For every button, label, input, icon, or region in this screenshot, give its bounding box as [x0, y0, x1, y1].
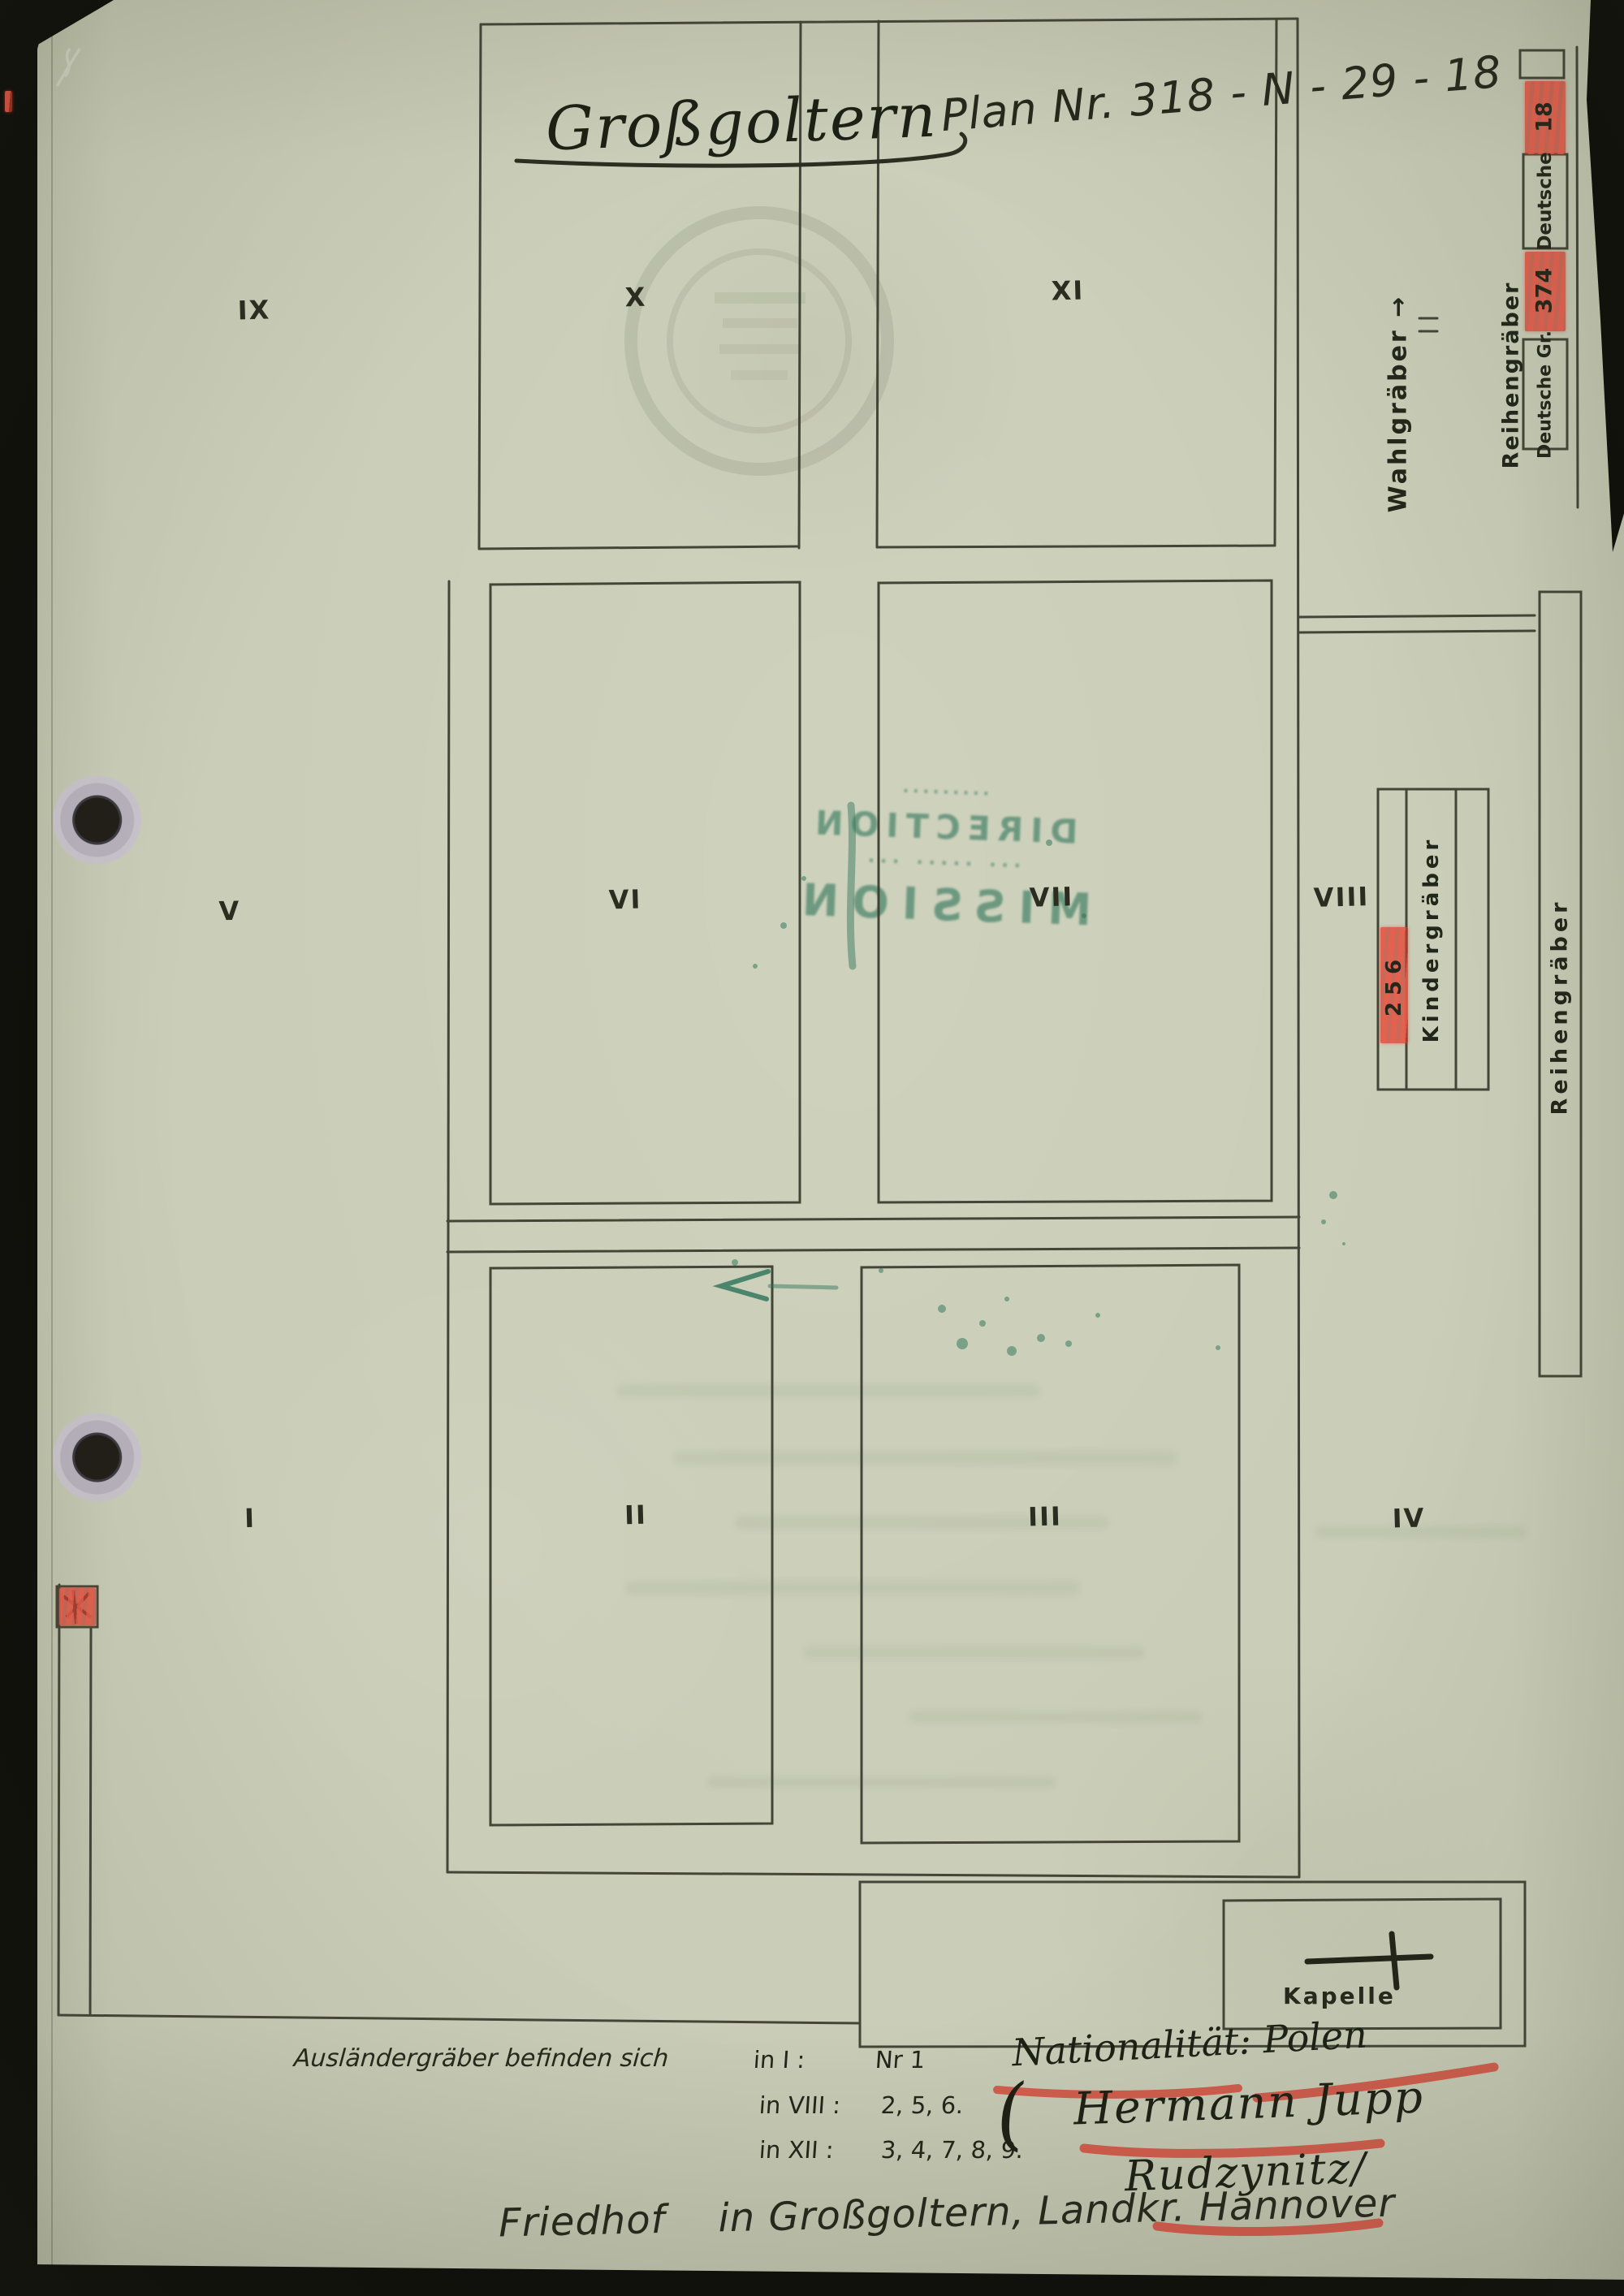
plot-label-x: X — [624, 282, 647, 313]
plot-label-v: V — [218, 896, 241, 927]
red-edge-dash — [5, 91, 12, 112]
label-wahlgraeber-text: Wahlgräber — [1384, 328, 1413, 512]
note-row: in I : Nr 1 — [753, 2046, 926, 2074]
label-deutsche: Deutsche — [1535, 152, 1556, 250]
red-marker-box-section-i — [59, 1588, 96, 1625]
hole-punch — [51, 772, 147, 868]
note-auslaendergraeber: Ausländergräber befinden sich — [293, 2044, 670, 2073]
note-row-section: in XII : — [758, 2136, 882, 2164]
plot-label-iv: IV — [1392, 1502, 1426, 1534]
label-kapelle: Kapelle — [1283, 1983, 1396, 2009]
plot-label-xi: XI — [1051, 274, 1085, 306]
plot-label-ix: IX — [237, 294, 271, 326]
scan-edge-left — [0, 0, 37, 2296]
note-row: in XII : 3, 4, 7, 8, 9. — [758, 2136, 1025, 2164]
page-title: Großgoltern — [545, 81, 939, 165]
count-kindergraeber: 256 — [1382, 953, 1406, 1016]
label-reihengraeber-right: Reihengräber — [1548, 899, 1573, 1116]
label-wahlgraeber: Wahlgräber → — [1384, 295, 1413, 513]
plot-label-iii: III — [1028, 1500, 1063, 1532]
note-row-section: in I : — [753, 2046, 876, 2074]
label-deutsche-gr: Deutsche Gr. — [1535, 330, 1556, 459]
arrow-icon: → — [1384, 295, 1413, 317]
paper-crease — [51, 0, 53, 2296]
plot-label-vi: VI — [608, 883, 642, 915]
scanned-cemetery-plan: ········· DIRECTION ··· ····· ··· MISSIO… — [0, 0, 1624, 2296]
note-row-values: 2, 5, 6. — [880, 2091, 965, 2119]
count-deutsche-gr: 374 — [1532, 268, 1557, 313]
plan-linework — [0, 0, 1624, 2296]
plot-label-viii: VIII — [1313, 881, 1369, 913]
hole-punch — [51, 1409, 147, 1505]
plot-label-ii: II — [624, 1500, 648, 1531]
note-row-section: in VIII : — [758, 2091, 882, 2119]
note-row-values: Nr 1 — [875, 2046, 926, 2074]
label-kindergraeber: Kindergräber — [1419, 836, 1444, 1043]
plot-label-vii: VII — [1029, 881, 1074, 913]
note-row: in VIII : 2, 5, 6. — [758, 2091, 965, 2119]
count-deutsche: 18 — [1532, 101, 1557, 132]
plot-label-i: I — [244, 1503, 257, 1534]
label-reihengraeber-top: Reihengräber — [1499, 282, 1524, 469]
